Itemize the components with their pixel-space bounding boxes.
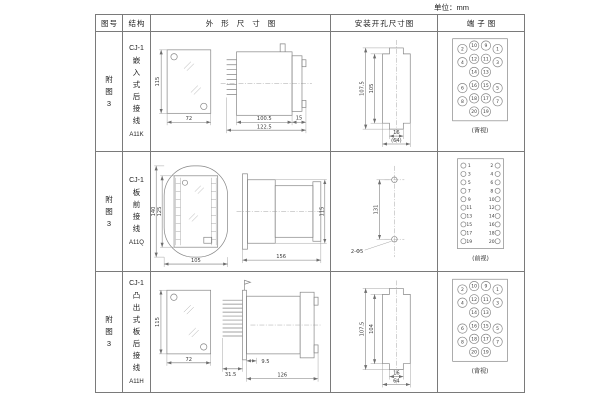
svg-text:7: 7 [468,188,471,194]
row1-outline-cell: 115 72 100.5 15 [151,32,331,152]
svg-text:12: 12 [471,56,477,62]
row1-outline-drawing: 115 72 100.5 15 [151,32,330,151]
row2-outline-drawing: 140 125 105 156 115 [151,152,330,271]
header-outline: 外形尺寸图 [151,15,331,32]
svg-text:13: 13 [483,310,489,316]
row1-terminal-cell: 2 10 9 1 4 12 11 3 14 13 6 16 15 5 8 18 [438,32,524,152]
dim-front-width: 72 [186,357,193,363]
row1-mounting-cell: 107.5 105 16 (64) [331,32,438,152]
dim-depth-total: 156 [276,254,286,260]
svg-text:10: 10 [489,197,495,203]
svg-text:14: 14 [471,70,477,76]
svg-text:14: 14 [471,310,477,316]
svg-text:4: 4 [461,300,464,306]
svg-text:11: 11 [466,205,472,211]
view-label: (背视) [472,127,489,135]
dim-front-width: 105 [191,258,201,264]
row3-mounting-drawing: 107.5 104 16 64 [331,272,437,392]
header-mounting: 安装开孔尺寸图 [331,15,438,32]
svg-text:12: 12 [489,205,495,211]
svg-text:6: 6 [461,326,464,332]
row2-terminal-diagram: 1 2 3 4 5 6 7 8 9 10 11 12 13 14 15 16 1 [438,152,524,271]
svg-text:3: 3 [468,172,471,178]
row1-terminal-diagram: 2 10 9 1 4 12 11 3 14 13 6 16 15 5 8 18 [438,32,524,151]
unit-note: 单位：mm [95,2,525,13]
dim-side-height: 115 [319,207,325,217]
svg-text:5: 5 [496,326,499,332]
svg-text:2: 2 [461,287,464,293]
row3-outline-cell: 115 72 31.5 9.5 [151,272,331,392]
side-view: 100.5 15 122.5 [221,44,312,133]
svg-text:17: 17 [483,96,489,102]
front-view: 115 72 [155,290,211,366]
svg-text:8: 8 [461,99,464,105]
row2-outline-cell: 140 125 105 156 115 [151,152,331,272]
svg-text:17: 17 [466,230,472,236]
svg-text:9: 9 [468,197,471,203]
row1-mounting-drawing: 107.5 105 16 (64) [331,32,437,151]
row1-figure-no: 附图3 [96,32,123,152]
dim-slot-width: 16 [393,371,400,377]
svg-text:8: 8 [490,188,493,194]
header-structure: 结构 [123,15,151,32]
dim-front-clearance: 15 [296,115,303,121]
hole-callout: 2-Φ5 [351,249,363,255]
dim-depth-body: 126 [277,373,287,379]
row3-terminal-diagram: 2 10 9 1 4 12 11 3 14 13 6 16 15 5 8 18 [438,272,524,392]
svg-text:2: 2 [461,47,464,53]
svg-text:18: 18 [489,230,495,236]
front-view: 140 125 105 [151,166,228,267]
svg-text:5: 5 [496,86,499,92]
dim-depth-total: 122.5 [257,125,272,131]
side-view: 156 115 [237,174,327,263]
svg-text:12: 12 [471,297,477,303]
svg-text:4: 4 [461,60,464,66]
svg-text:19: 19 [466,239,472,245]
dim-span: (64) [391,138,402,144]
svg-text:11: 11 [483,56,489,62]
row3-figure-no: 附图3 [96,272,123,392]
dim-hole-span: 131 [374,205,380,215]
view-label: (背视) [472,367,489,375]
svg-text:3: 3 [496,300,499,306]
dim-outer-height: 107.5 [360,322,366,337]
row3-structure: CJ-1 凸出式板后接线 A11H [123,272,151,392]
svg-text:20: 20 [489,239,495,245]
dim-slot-width: 16 [393,130,400,136]
front-view: 115 72 [155,50,211,125]
svg-text:6: 6 [490,180,493,186]
row2-structure: CJ-1 板前接线 A11Q [123,152,151,272]
svg-text:3: 3 [496,60,499,66]
side-view: 31.5 9.5 126 [223,280,322,381]
svg-text:6: 6 [461,86,464,92]
svg-text:17: 17 [483,337,489,343]
dim-depth-body: 100.5 [257,116,272,122]
svg-text:9: 9 [484,43,487,49]
svg-text:16: 16 [489,222,495,228]
relay-dimension-sheet: 单位：mm 图号 结构 外形尺寸图 安装开孔尺寸图 端子图 附图3 CJ-1 嵌… [0,0,600,400]
dim-span: 64 [393,379,400,385]
dim-front-height: 115 [155,317,161,327]
svg-text:1: 1 [496,287,499,293]
terminal-circles: 1 2 3 4 5 6 7 8 9 10 11 12 13 14 15 16 1 [461,163,500,245]
svg-text:16: 16 [471,323,477,329]
dimension-table: 图号 结构 外形尺寸图 安装开孔尺寸图 端子图 附图3 CJ-1 嵌入式后接线 … [95,14,525,393]
svg-text:2: 2 [490,163,493,169]
dim-outer-height: 107.5 [360,81,366,96]
svg-text:1: 1 [468,163,471,169]
dim-panel-offset: 9.5 [261,359,269,365]
svg-text:20: 20 [471,350,477,356]
svg-text:4: 4 [490,172,493,178]
dim-front-height: 115 [155,77,161,87]
row3-mounting-cell: 107.5 104 16 64 [331,272,438,392]
svg-text:11: 11 [483,297,489,303]
svg-text:19: 19 [483,109,489,115]
svg-text:15: 15 [483,83,489,89]
terminal-circles: 2 10 9 1 4 12 11 3 14 13 6 16 15 5 8 18 [458,281,503,356]
svg-text:20: 20 [471,109,477,115]
svg-text:7: 7 [496,99,499,105]
svg-text:18: 18 [471,337,477,343]
dim-inner-height: 125 [157,207,163,217]
svg-text:13: 13 [466,214,472,220]
svg-text:5: 5 [468,180,471,186]
header-figure-no: 图号 [96,15,123,32]
row2-mounting-cell: 131 2-Φ5 [331,152,438,272]
svg-text:15: 15 [483,323,489,329]
svg-text:18: 18 [471,96,477,102]
row2-mounting-drawing: 131 2-Φ5 [331,152,437,271]
svg-text:19: 19 [483,350,489,356]
row1-structure: CJ-1 嵌入式后接线 A11K [123,32,151,152]
row2-figure-no: 附图3 [96,152,123,272]
svg-text:1: 1 [496,47,499,53]
svg-text:8: 8 [461,339,464,345]
svg-text:13: 13 [483,70,489,76]
header-terminal: 端子图 [438,15,524,32]
dim-front-width: 72 [186,116,193,122]
row2-terminal-cell: 1 2 3 4 5 6 7 8 9 10 11 12 13 14 15 16 1 [438,152,524,272]
dim-inner-height: 104 [369,324,375,334]
dim-pin-length: 31.5 [225,372,236,378]
svg-text:16: 16 [471,83,477,89]
svg-text:9: 9 [484,284,487,290]
svg-text:15: 15 [466,222,472,228]
svg-text:7: 7 [496,339,499,345]
svg-text:10: 10 [471,43,477,49]
view-label: (前视) [472,254,489,262]
svg-text:14: 14 [489,214,495,220]
row3-terminal-cell: 2 10 9 1 4 12 11 3 14 13 6 16 15 5 8 18 [438,272,524,392]
dim-inner-height: 105 [369,84,375,94]
svg-text:10: 10 [471,284,477,290]
terminal-circles: 2 10 9 1 4 12 11 3 14 13 6 16 15 5 8 18 [458,41,503,116]
row3-outline-drawing: 115 72 31.5 9.5 [151,272,330,392]
